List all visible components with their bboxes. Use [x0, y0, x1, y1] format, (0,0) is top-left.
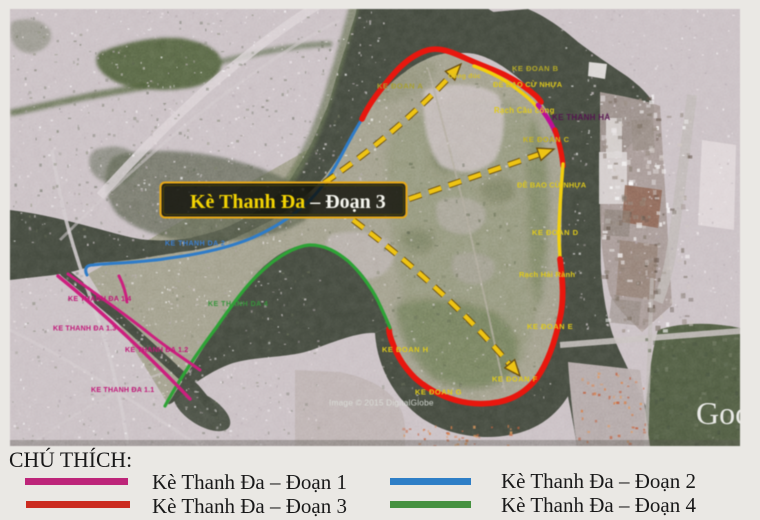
svg-text:KE ĐOAN E: KE ĐOAN E — [527, 322, 573, 331]
svg-text:Rạch Hải Rành: Rạch Hải Rành — [519, 270, 575, 279]
svg-text:ĐÊ BAO CỪ NHỰA: ĐÊ BAO CỪ NHỰA — [493, 80, 563, 89]
svg-text:KE THANH ĐA 1.2: KE THANH ĐA 1.2 — [125, 346, 188, 354]
svg-text:Cống đúc: Cống đúc — [448, 72, 481, 80]
svg-text:KE THANH HÀ: KE THANH HÀ — [552, 113, 610, 122]
svg-text:KE THANH DA 4: KE THANH DA 4 — [208, 301, 268, 308]
svg-text:Goo: Goo — [696, 395, 740, 431]
svg-text:KE ĐOAN F: KE ĐOAN F — [492, 375, 538, 384]
svg-text:Kè Thanh Đa – Đoạn 3: Kè Thanh Đa – Đoạn 3 — [190, 191, 386, 213]
svg-text:KE ĐOAN H: KE ĐOAN H — [382, 345, 429, 354]
svg-text:KE ĐOAN A: KE ĐOAN A — [377, 82, 423, 91]
svg-text:KE ĐOAN C: KE ĐOAN C — [523, 135, 570, 144]
svg-text:KE ĐOAN D: KE ĐOAN D — [532, 228, 579, 237]
svg-text:KE THANH ĐA 1.1: KE THANH ĐA 1.1 — [91, 386, 154, 394]
svg-text:Image © 2015 DigitalGlobe: Image © 2015 DigitalGlobe — [329, 398, 434, 408]
svg-text:KE ĐOAN B: KE ĐOAN B — [512, 64, 559, 73]
svg-text:KE THANH ĐA 1.4: KE THANH ĐA 1.4 — [68, 295, 131, 303]
svg-text:Rạch Cầu cống: Rạch Cầu cống — [494, 106, 555, 115]
svg-text:KE THANH DA 2: KE THANH DA 2 — [165, 241, 225, 248]
svg-text:KE THANH ĐA 1.3: KE THANH ĐA 1.3 — [53, 325, 116, 333]
svg-text:ĐÊ BAO CỪ NHỰA: ĐÊ BAO CỪ NHỰA — [517, 181, 587, 190]
svg-text:KE ĐOAN G: KE ĐOAN G — [415, 388, 462, 397]
